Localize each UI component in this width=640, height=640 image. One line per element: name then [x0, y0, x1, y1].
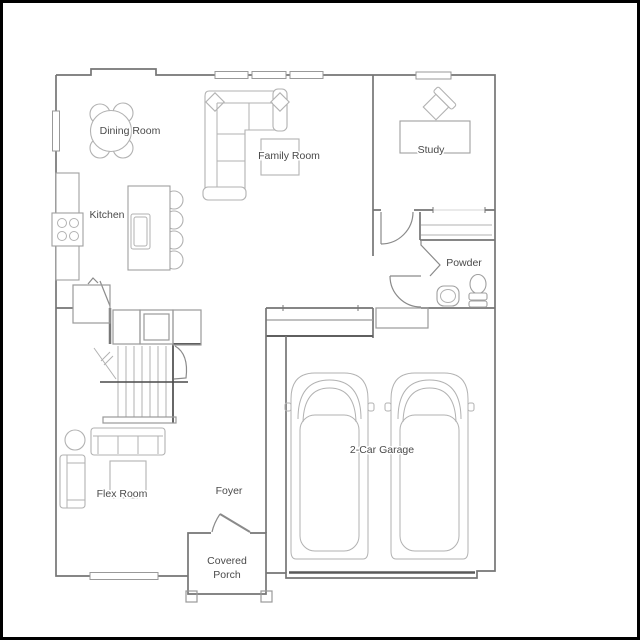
mudroom-cubbies — [113, 310, 201, 345]
room-label-family: Family Room — [258, 150, 320, 162]
side-table — [65, 430, 85, 450]
garage-cars — [285, 373, 474, 559]
desk-chair — [420, 86, 456, 122]
window — [416, 72, 451, 79]
room-label-flex: Flex Room — [97, 488, 148, 500]
study-door — [381, 212, 413, 244]
toilet-tank — [469, 293, 487, 300]
pantry-door — [88, 278, 110, 306]
garage-step — [376, 308, 428, 328]
car-mirror — [368, 403, 374, 411]
cubby — [173, 310, 201, 345]
closet — [420, 212, 495, 240]
powder-area — [437, 275, 487, 308]
cubby — [113, 310, 140, 344]
window — [53, 111, 60, 151]
room-label-dining: Dining Room — [100, 125, 161, 137]
window — [90, 573, 158, 580]
powder-door — [390, 276, 421, 307]
sofa-armrest — [203, 187, 246, 200]
room-label-porch-line2: Porch — [213, 569, 241, 581]
window — [215, 72, 248, 79]
room-label-powder: Powder — [446, 257, 482, 269]
toilet-tank — [469, 301, 487, 307]
room-label-study: Study — [418, 144, 446, 156]
room-label-porch-line1: Covered — [207, 555, 247, 567]
flex-sofa — [91, 428, 165, 455]
car — [285, 373, 374, 559]
front-door — [212, 514, 250, 532]
car — [385, 373, 474, 559]
floor-plan-screenshot: Dining Room Family Room Study Kitchen Po… — [0, 0, 640, 640]
toilet-bowl — [470, 275, 486, 294]
room-label-kitchen: Kitchen — [89, 209, 124, 221]
kitchen-area — [52, 173, 183, 323]
car-mirror — [385, 403, 391, 411]
hall-door — [174, 346, 187, 379]
window — [290, 72, 323, 79]
room-label-garage: 2-Car Garage — [350, 444, 414, 456]
room-label-foyer: Foyer — [216, 485, 243, 497]
cubby-inner — [144, 314, 169, 340]
family-room-area — [203, 89, 299, 200]
stair-rail — [103, 417, 176, 423]
stove — [52, 213, 83, 246]
car-mirror — [468, 403, 474, 411]
window — [252, 72, 286, 79]
cubby — [140, 310, 173, 344]
floor-plan-drawing: Dining Room Family Room Study Kitchen Po… — [3, 3, 640, 640]
